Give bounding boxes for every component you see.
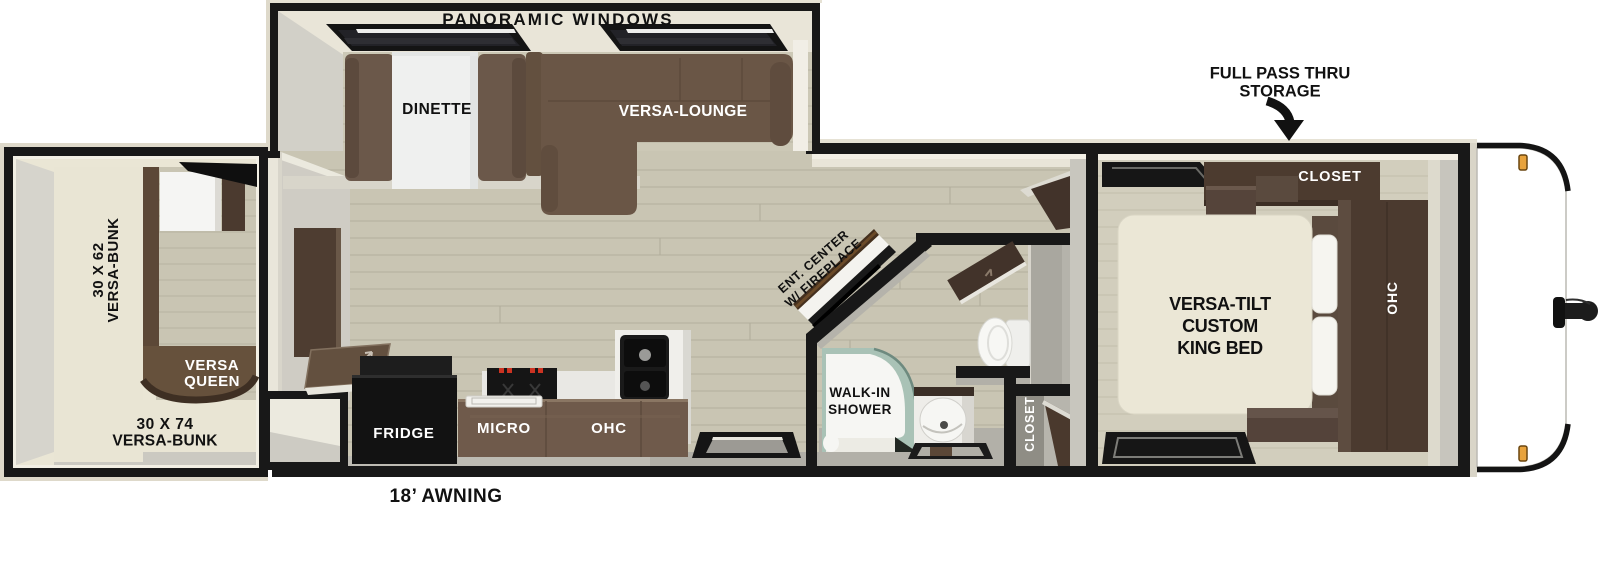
svg-text:VERSA-LOUNGE: VERSA-LOUNGE xyxy=(619,103,747,120)
svg-text:VERSA-BUNK: VERSA-BUNK xyxy=(105,217,122,322)
svg-text:MICRO: MICRO xyxy=(477,420,531,437)
svg-text:OHC: OHC xyxy=(1384,281,1400,315)
svg-text:KING BED: KING BED xyxy=(1177,338,1263,358)
svg-text:SHOWER: SHOWER xyxy=(828,402,892,417)
svg-text:VERSA-TILT: VERSA-TILT xyxy=(1169,294,1271,314)
svg-text:30 X 74: 30 X 74 xyxy=(137,416,194,433)
svg-text:STORAGE: STORAGE xyxy=(1239,83,1320,101)
svg-text:PANORAMIC WINDOWS: PANORAMIC WINDOWS xyxy=(442,10,674,29)
svg-text:CLOSET: CLOSET xyxy=(1023,396,1037,452)
svg-text:VERSA-BUNK: VERSA-BUNK xyxy=(112,433,218,450)
svg-text:QUEEN: QUEEN xyxy=(184,373,240,390)
svg-text:OHC: OHC xyxy=(591,420,627,437)
svg-text:18’ AWNING: 18’ AWNING xyxy=(389,486,502,507)
svg-text:DINETTE: DINETTE xyxy=(402,101,472,118)
svg-text:CUSTOM: CUSTOM xyxy=(1182,316,1258,336)
svg-text:WALK-IN: WALK-IN xyxy=(829,385,890,400)
svg-text:VERSA: VERSA xyxy=(185,357,239,374)
svg-text:CLOSET: CLOSET xyxy=(1298,169,1362,185)
svg-text:FRIDGE: FRIDGE xyxy=(373,425,434,442)
svg-text:FULL PASS THRU: FULL PASS THRU xyxy=(1210,65,1351,83)
